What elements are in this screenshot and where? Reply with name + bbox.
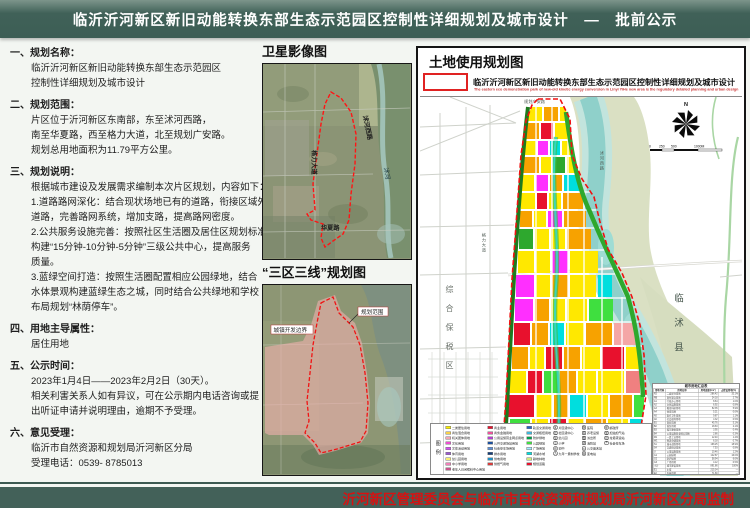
summary-row: E2农林用地71.80— [653, 472, 739, 475]
legend-symbol-icon: 警 [582, 436, 586, 440]
legend-label: 商务金融用地 [494, 431, 512, 436]
legend-label: 社会停车场 [610, 441, 625, 446]
notice-line: 2.公共服务设施完善：按照社区生活圈及居住区规划标准， [31, 225, 262, 240]
legend-label: 文体活动用地 [452, 446, 470, 451]
maps-column: 卫星影像图 格力大道 沭河西 [262, 44, 414, 476]
legend-item: 垃垃圾转运站 [605, 435, 625, 440]
legend-swatch [527, 426, 533, 429]
bonded-zone-label: 综合保税区 [444, 285, 455, 380]
legend-symbol-icon: 初 [554, 446, 558, 450]
legend-label: 机关团体用地 [452, 436, 470, 441]
section-3: 三、规划说明： 根据城市建设及发展需求编制本次片区规划，内容如下：1.道路路网深… [10, 165, 262, 315]
legend-label: 河湖水域 [533, 451, 545, 456]
notice-line: 规划总用地面积为11.79平方公里。 [31, 143, 262, 158]
legend-swatch [446, 426, 452, 429]
legend-swatch [488, 431, 494, 434]
legend-item: 公公交首末站 [582, 446, 602, 451]
notice-text-column: 一、规划名称： 临沂沂河新区新旧动能转换东部生态示范园区控制性详细规划及城市设计… [10, 46, 262, 478]
header-banner: 临沂沂河新区新旧动能转换东部生态示范园区控制性详细规划及城市设计 — 批前公示 [0, 0, 750, 38]
legend-label: 规划道路 [533, 462, 545, 467]
legend-swatch [446, 462, 452, 465]
svg-text:格力大道: 格力大道 [310, 150, 318, 176]
section-2: 二、规划范围： 片区位于沂河新区东南部，东至沭河西路，南至华夏路，西至格力大道，… [10, 98, 262, 158]
legend-label: 轨道交通用地 [533, 425, 551, 430]
legend-swatch [488, 462, 494, 465]
notice-line: 2023年1月4日——2023年2月2日（30天）。 [31, 374, 262, 389]
section-6: 六、意见受理： 临沂市自然资源和规划局沂河新区分局受理电话：0539- 8785… [10, 426, 262, 471]
legend-symbol-icon: 区 [554, 426, 558, 430]
credit-text: 沂河新区管理委员会与临沂市自然资源和规划局沂河新区分局监制 [343, 488, 735, 508]
landuse-map: N 0 250 500 1000M 临沭县 综合保税区 沭河西路 格力大道 华夏… [420, 96, 742, 476]
legend-column: 医医院养养老设施警派出所消消防站公公交首末站变变电站 [581, 424, 604, 475]
notice-line: 3.蓝绿空间打造：按照生活圈配置相应公园绿地，结合 [31, 270, 262, 285]
footer-divider [0, 482, 750, 484]
legend-label: 体育用地 [452, 451, 464, 456]
notice-line: 水体景观构建蓝绿生态之城，同时结合公共绿地和学校 [31, 285, 262, 300]
legend-label: 商业用地 [494, 425, 506, 430]
landuse-title: 土地使用规划图 [429, 51, 524, 71]
legend-symbol-icon: 九 [554, 452, 558, 456]
notice-line: 根据城市建设及发展需求编制本次片区规划，内容如下： [31, 180, 262, 195]
legend-label: 中小学用地 [452, 462, 467, 467]
svg-text:500: 500 [671, 145, 677, 149]
notice-line: 道路，完善路网系统，增加支路，提高路网密度。 [31, 210, 262, 225]
satellite-map-title: 卫星影像图 [262, 44, 414, 60]
legend-column: 邮邮政所加加油加气站垃垃圾转运站P社会停车场 [603, 424, 626, 475]
legend-swatch [527, 457, 533, 460]
notice-line: 相关利害关系人如有异议，可在公示期内电话咨询或提 [31, 389, 262, 404]
map-legend: 图例 二类居住用地商住混合用地机关团体用地文化用地文体活动用地体育用地幼儿园用地… [430, 423, 652, 475]
legend-label: 供电用地 [494, 457, 506, 462]
legend-item: 加加油加气站 [605, 430, 625, 435]
legend-label: 供燃气用地 [494, 462, 509, 467]
notice-line: 出听证申请并说明理由，逾期不予受理。 [31, 404, 262, 419]
legend-swatch [446, 436, 452, 439]
legend-label: 广场用地 [533, 446, 545, 451]
legend-label: 社会停车场用地 [494, 446, 515, 451]
legend-label: 公共交通场站用地 [494, 441, 518, 446]
legend-swatch [446, 468, 452, 471]
notice-line: 构建“15分钟-10分钟-5分钟”三级公共中心，提高服务 [31, 240, 262, 255]
legend-label: 消防站 [587, 441, 596, 446]
three-zones-map-title: “三区三线”规划图 [262, 265, 414, 281]
notice-line: 临沂沂河新区新旧动能转换东部生态示范园区 [31, 61, 262, 76]
svg-text:1000M: 1000M [694, 145, 705, 149]
legend-swatch [446, 447, 452, 450]
legend-swatch [488, 452, 494, 455]
legend-swatch [527, 462, 533, 465]
summary-cell: 农林用地 [666, 472, 698, 475]
legend-swatch [488, 447, 494, 450]
legend-columns: 二类居住用地商住混合用地机关团体用地文化用地文体活动用地体育用地幼儿园用地中小学… [444, 424, 626, 475]
legend-swatch [527, 436, 533, 439]
summary-cell: E2 [653, 472, 666, 475]
map-subtitle-en: The eastern eco demonstration park of ne… [474, 88, 738, 92]
legend-label: 文化用地 [452, 441, 464, 446]
svg-text:0: 0 [649, 145, 651, 149]
legend-label: 交通枢纽用地 [533, 431, 551, 436]
three-zones-map-image: 城镇开发边界 规划范围 [263, 285, 410, 474]
legend-swatch [488, 442, 494, 445]
legend-symbol-icon: 邮 [605, 426, 609, 430]
legend-label: 垃圾转运站 [610, 436, 625, 441]
section-1: 一、规划名称： 临沂沂河新区新旧动能转换东部生态示范园区控制性详细规划及城市设计 [10, 46, 262, 91]
legend-item: 规划道路 [527, 461, 552, 466]
legend-symbol-icon: 养 [582, 431, 586, 435]
legend-label: 社区级中心 [559, 431, 574, 436]
legend-swatch [446, 431, 452, 434]
notice-line: 居住用地 [31, 337, 262, 352]
satellite-map: 格力大道 沭河西路 华夏路 沭河 [262, 63, 412, 260]
road-label-west: 格力大道 [480, 233, 486, 253]
legend-label: 派出所 [587, 436, 596, 441]
boundary-key-box [423, 73, 468, 91]
legend-label: 小学 [559, 441, 565, 446]
legend-label: 医院 [587, 425, 593, 430]
legend-symbol-icon: 公 [582, 446, 586, 450]
svg-text:华夏路: 华夏路 [321, 224, 340, 232]
legend-label: 耕地林地 [533, 457, 545, 462]
legend-label: 老年人日间照料中心用地 [452, 467, 485, 472]
legend-column: 轨道交通用地交通枢纽用地防护绿地公园绿地广场用地河湖水域耕地林地规划道路 [525, 424, 552, 475]
legend-label: 排水用地 [494, 451, 506, 456]
legend-label: 幼儿园用地 [452, 457, 467, 462]
notice-line: 质量。 [31, 255, 262, 270]
legend-label: 公园绿地 [533, 441, 545, 446]
legend-swatch [488, 457, 494, 460]
svg-text:规划范围: 规划范围 [361, 308, 384, 316]
legend-symbol-icon: 消 [582, 441, 586, 445]
legend-symbol-icon: 加 [605, 431, 609, 435]
legend-swatch [527, 442, 533, 445]
legend-swatch [446, 457, 452, 460]
summary-cell: — [718, 472, 738, 475]
legend-label: 初中 [559, 446, 565, 451]
page-title: 临沂沂河新区新旧动能转换东部生态示范园区控制性详细规划及城市设计 — 批前公示 [73, 9, 678, 30]
public-notice-poster: 临沂沂河新区新旧动能转换东部生态示范园区控制性详细规划及城市设计 — 批前公示 … [0, 0, 750, 508]
legend-label: 片区级中心 [559, 425, 574, 430]
section-5: 五、公示时间： 2023年1月4日——2023年2月2日（30天）。相关利害关系… [10, 359, 262, 419]
legend-title: 图例 [431, 424, 444, 475]
legend-label: 加油加气站 [610, 431, 625, 436]
road-label-north: 规划广安路 [524, 98, 545, 104]
summary-cell: 71.80 [698, 472, 718, 475]
legend-column: 二类居住用地商住混合用地机关团体用地文化用地文体活动用地体育用地幼儿园用地中小学… [444, 424, 486, 475]
legend-item: P社会停车场 [605, 441, 625, 446]
legend-swatch [488, 426, 494, 429]
legend-column: 区片区级中心社社区级中心幼幼儿园小小学初初中九九年一贯制学校 [552, 424, 581, 475]
notice-line: 1.道路路网深化：结合现状场地已有的道路，衔接区域外 [31, 195, 262, 210]
road-label-east: 沭河西路 [598, 151, 604, 171]
legend-symbol-icon: 社 [554, 431, 558, 435]
legend-swatch [527, 452, 533, 455]
notice-line: 片区位于沂河新区东南部，东至沭河西路， [31, 113, 262, 128]
svg-text:250: 250 [659, 145, 665, 149]
legend-item: 供燃气用地 [488, 461, 525, 466]
legend-column: 商业用地商务金融用地公用设施营业网点用地公共交通场站用地社会停车场用地排水用地供… [486, 424, 525, 475]
legend-label: 二类居住用地 [452, 425, 470, 430]
notice-line: 南至华夏路，西至格力大道，北至规划广安路。 [31, 128, 262, 143]
landuse-summary-table: 城市用地汇总表 用地代码用地名称用地面积(hm²)占建设用地(%)R2二类居住用… [652, 383, 740, 475]
three-zones-map: 城镇开发边界 规划范围 [262, 284, 412, 476]
legend-item: 老年人日间照料中心用地 [446, 467, 486, 472]
legend-swatch [488, 436, 494, 439]
notice-line: 临沂市自然资源和规划局沂河新区分局 [31, 441, 262, 456]
notice-line: 控制性详细规划及城市设计 [31, 76, 262, 91]
legend-item: 养养老设施 [582, 430, 602, 435]
landuse-panel: 土地使用规划图 临沂沂河新区新旧动能转换东部生态示范园区控制性详细规划及城市设计… [416, 46, 746, 480]
notice-line: 布局规划“林荫停车”。 [31, 300, 262, 315]
footer-banner: 沂河新区管理委员会与临沂市自然资源和规划局沂河新区分局监制 [0, 487, 750, 508]
legend-label: 商住混合用地 [452, 431, 470, 436]
satellite-map-image: 格力大道 沭河西路 华夏路 沭河 [263, 64, 410, 258]
legend-swatch [527, 431, 533, 434]
legend-symbol-icon: P [605, 441, 609, 445]
legend-symbol-icon: 垃 [605, 436, 609, 440]
legend-swatch [527, 447, 533, 450]
legend-label: 九年一贯制学校 [559, 451, 580, 456]
legend-label: 幼儿园 [559, 436, 568, 441]
notice-line: 受理电话：0539- 8785013 [31, 456, 262, 471]
legend-label: 邮政所 [610, 425, 619, 430]
map-subtitle-cn: 临沂沂河新区新旧动能转换东部生态示范园区控制性详细规划及城市设计 [473, 76, 735, 88]
county-label: 临沭县 [670, 293, 684, 367]
svg-text:N: N [684, 102, 688, 108]
legend-label: 公交首末站 [587, 446, 602, 451]
svg-text:城镇开发边界: 城镇开发边界 [274, 326, 308, 334]
legend-symbol-icon: 变 [582, 452, 586, 456]
legend-label: 养老设施 [587, 431, 599, 436]
legend-item: 九九年一贯制学校 [554, 451, 580, 456]
legend-label: 公用设施营业网点用地 [494, 436, 524, 441]
legend-item: 变变电站 [582, 451, 602, 456]
legend-symbol-icon: 小 [554, 441, 558, 445]
legend-symbol-icon: 医 [582, 426, 586, 430]
legend-symbol-icon: 幼 [554, 436, 558, 440]
legend-swatch [446, 442, 452, 445]
legend-label: 防护绿地 [533, 436, 545, 441]
legend-label: 变电站 [587, 451, 596, 456]
legend-swatch [446, 452, 452, 455]
section-4: 四、用地主导属性： 居住用地 [10, 322, 262, 352]
